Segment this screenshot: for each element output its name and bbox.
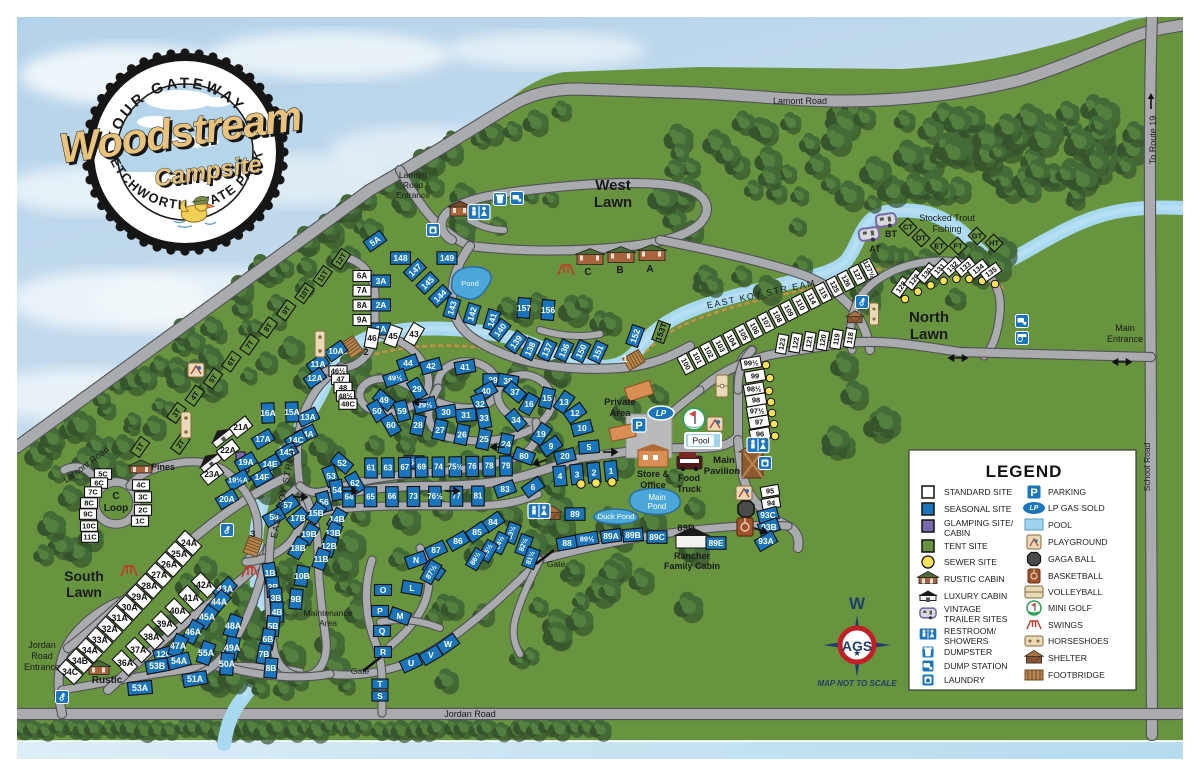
svg-text:46A: 46A	[185, 627, 202, 637]
svg-text:5C: 5C	[98, 470, 108, 479]
svg-text:POOL: POOL	[1048, 520, 1072, 530]
svg-text:GAGA BALL: GAGA BALL	[1048, 554, 1096, 564]
svg-text:FOOTBRIDGE: FOOTBRIDGE	[1048, 670, 1105, 680]
svg-text:Rustic: Rustic	[92, 675, 123, 686]
svg-text:W: W	[444, 639, 453, 649]
svg-text:59: 59	[397, 406, 407, 416]
svg-text:R: R	[380, 647, 386, 657]
svg-text:55A: 55A	[198, 648, 215, 658]
svg-text:SEASONAL SITE: SEASONAL SITE	[944, 504, 1012, 514]
svg-text:VOLLEYBALL: VOLLEYBALL	[1048, 587, 1103, 597]
svg-text:9: 9	[549, 441, 554, 451]
svg-text:Store &: Store &	[637, 469, 670, 479]
svg-text:15A: 15A	[284, 407, 300, 417]
svg-text:76: 76	[468, 462, 477, 471]
svg-text:W: W	[849, 594, 866, 613]
svg-text:16A: 16A	[260, 408, 276, 418]
svg-text:44: 44	[403, 358, 413, 368]
svg-text:89E: 89E	[708, 538, 723, 548]
svg-text:86: 86	[453, 536, 463, 546]
svg-text:6C: 6C	[94, 479, 104, 488]
svg-text:157: 157	[517, 303, 531, 313]
svg-text:94: 94	[767, 499, 776, 508]
svg-text:AT: AT	[869, 244, 881, 254]
svg-text:LP: LP	[1030, 505, 1039, 512]
svg-text:43: 43	[409, 329, 419, 339]
svg-text:Q: Q	[379, 626, 386, 636]
svg-text:3: 3	[575, 469, 580, 479]
svg-text:61: 61	[367, 464, 376, 473]
svg-text:West: West	[595, 177, 631, 194]
svg-text:N: N	[413, 555, 419, 565]
svg-text:37A: 37A	[130, 645, 147, 655]
svg-text:97½: 97½	[750, 407, 765, 416]
svg-text:Lawn: Lawn	[594, 194, 632, 211]
svg-text:ET: ET	[934, 242, 944, 251]
svg-text:156: 156	[541, 305, 555, 315]
svg-text:50A: 50A	[219, 659, 236, 669]
svg-text:HT: HT	[989, 239, 999, 248]
svg-text:89A: 89A	[603, 531, 619, 541]
svg-text:13A: 13A	[300, 412, 316, 422]
svg-text:39A: 39A	[156, 619, 173, 629]
svg-text:34B: 34B	[72, 656, 88, 666]
svg-text:78: 78	[485, 462, 494, 471]
svg-text:VINTAGE: VINTAGE	[944, 604, 981, 614]
svg-text:P: P	[377, 606, 383, 616]
svg-text:31: 31	[461, 410, 471, 420]
svg-text:42: 42	[426, 361, 436, 371]
svg-text:30: 30	[441, 407, 451, 417]
svg-text:Jordan Road: Jordan Road	[444, 709, 496, 719]
svg-text:50: 50	[372, 406, 382, 416]
svg-text:SWINGS: SWINGS	[1048, 620, 1083, 630]
svg-text:33: 33	[479, 413, 489, 423]
svg-text:45: 45	[388, 331, 398, 341]
svg-text:10B: 10B	[294, 571, 310, 581]
svg-text:C: C	[112, 491, 119, 502]
svg-text:Truck: Truck	[677, 484, 702, 494]
svg-text:P: P	[1030, 487, 1037, 499]
svg-text:38A: 38A	[143, 632, 160, 642]
svg-text:11C: 11C	[83, 533, 97, 542]
svg-text:LEGEND: LEGEND	[986, 462, 1063, 481]
svg-text:DUMP STATION: DUMP STATION	[944, 661, 1008, 671]
svg-text:18B: 18B	[290, 543, 306, 553]
svg-text:U: U	[408, 658, 414, 668]
svg-text:76½: 76½	[427, 492, 443, 501]
svg-text:LP: LP	[656, 409, 667, 418]
svg-text:97: 97	[755, 418, 763, 427]
svg-text:B: B	[616, 265, 623, 276]
svg-text:29: 29	[412, 384, 422, 394]
svg-text:LUXURY CABIN: LUXURY CABIN	[944, 591, 1007, 601]
svg-text:Pond: Pond	[461, 279, 479, 288]
svg-text:33A: 33A	[92, 635, 109, 645]
svg-text:28: 28	[413, 420, 423, 430]
svg-text:20: 20	[560, 451, 570, 461]
svg-text:67: 67	[400, 463, 409, 472]
svg-text:89: 89	[570, 509, 580, 519]
svg-text:75½: 75½	[448, 462, 464, 471]
svg-text:L: L	[409, 583, 414, 593]
svg-text:⚦: ⚦	[58, 692, 65, 703]
svg-text:52: 52	[337, 458, 347, 468]
svg-text:93A: 93A	[758, 536, 774, 546]
svg-text:Pool: Pool	[692, 436, 709, 446]
svg-text:66: 66	[388, 492, 397, 501]
svg-text:9B: 9B	[291, 594, 302, 604]
svg-text:81: 81	[474, 492, 483, 501]
svg-text:Pond: Pond	[648, 502, 667, 511]
svg-text:12A: 12A	[307, 373, 323, 383]
svg-text:73: 73	[409, 492, 418, 501]
svg-text:45A: 45A	[199, 612, 216, 622]
svg-text:54A: 54A	[171, 656, 188, 666]
svg-text:7A: 7A	[357, 286, 367, 295]
svg-text:Entrance: Entrance	[396, 190, 430, 200]
svg-text:40A: 40A	[170, 606, 187, 616]
svg-text:A: A	[646, 264, 653, 275]
svg-text:11A: 11A	[310, 359, 325, 369]
svg-text:6B: 6B	[263, 634, 274, 644]
svg-text:36A: 36A	[117, 658, 134, 668]
svg-text:32A: 32A	[102, 624, 119, 634]
svg-text:65: 65	[366, 492, 375, 501]
svg-text:89D: 89D	[677, 523, 695, 534]
svg-text:Lawn: Lawn	[66, 584, 102, 600]
svg-text:25: 25	[479, 434, 489, 444]
svg-text:3C: 3C	[138, 493, 148, 502]
svg-text:17B: 17B	[290, 513, 306, 523]
svg-text:Maintenance: Maintenance	[304, 608, 353, 618]
svg-text:12: 12	[570, 408, 580, 418]
svg-text:Road: Road	[403, 180, 424, 190]
svg-text:8B: 8B	[266, 663, 277, 673]
svg-text:Food: Food	[678, 473, 700, 483]
svg-text:74: 74	[434, 463, 443, 472]
svg-text:SHOWERS: SHOWERS	[944, 636, 989, 646]
svg-text:19: 19	[536, 429, 546, 439]
svg-text:Main: Main	[1115, 323, 1135, 333]
svg-text:Entrance: Entrance	[1107, 334, 1143, 344]
svg-text:80: 80	[519, 451, 529, 461]
svg-text:FT: FT	[953, 242, 963, 251]
svg-text:10C: 10C	[82, 522, 96, 531]
svg-text:63: 63	[384, 463, 393, 472]
svg-text:54: 54	[332, 485, 342, 495]
svg-text:Lamont: Lamont	[399, 170, 428, 180]
svg-text:SHELTER: SHELTER	[1048, 653, 1087, 663]
svg-text:Main: Main	[713, 455, 735, 466]
svg-text:O: O	[380, 585, 387, 595]
svg-text:Pines: Pines	[151, 462, 175, 472]
svg-text:2C: 2C	[138, 506, 148, 515]
svg-text:1: 1	[622, 354, 627, 364]
svg-text:99½: 99½	[744, 359, 759, 368]
svg-text:S: S	[377, 691, 383, 701]
svg-text:Duck Pond: Duck Pond	[598, 512, 635, 521]
svg-text:⚦: ⚦	[223, 525, 230, 536]
svg-text:34: 34	[511, 415, 521, 425]
svg-text:49: 49	[379, 395, 389, 405]
svg-text:TRAILER SITES: TRAILER SITES	[944, 614, 1008, 624]
svg-text:PARKING: PARKING	[1048, 487, 1086, 497]
svg-text:28A: 28A	[141, 581, 158, 591]
svg-text:60: 60	[386, 420, 396, 430]
svg-text:RESTROOM/: RESTROOM/	[944, 626, 997, 636]
svg-text:14F: 14F	[255, 472, 270, 482]
svg-text:Stocked Trout: Stocked Trout	[919, 213, 975, 223]
svg-text:26A: 26A	[161, 560, 178, 570]
svg-text:89C: 89C	[649, 532, 665, 542]
svg-text:CABIN: CABIN	[944, 528, 970, 538]
svg-text:5: 5	[587, 442, 592, 452]
svg-text:★: ★	[853, 648, 861, 658]
svg-text:2: 2	[592, 468, 597, 478]
svg-text:19½A: 19½A	[228, 476, 249, 485]
svg-text:Area: Area	[609, 408, 631, 419]
svg-text:Pavilion: Pavilion	[704, 466, 741, 477]
svg-text:15: 15	[542, 393, 552, 403]
svg-text:6: 6	[531, 482, 536, 492]
svg-text:51A: 51A	[187, 674, 204, 684]
svg-text:STANDARD SITE: STANDARD SITE	[944, 487, 1012, 497]
svg-text:CT: CT	[903, 223, 913, 232]
svg-text:48A: 48A	[225, 621, 242, 631]
svg-text:Jordan: Jordan	[28, 640, 56, 650]
svg-text:School Road: School Road	[1142, 442, 1152, 491]
svg-text:South: South	[64, 568, 104, 584]
svg-text:Gate: Gate	[547, 559, 566, 569]
svg-text:20A: 20A	[219, 494, 235, 504]
svg-text:P: P	[635, 420, 642, 432]
svg-text:25A: 25A	[171, 549, 188, 559]
svg-text:149: 149	[440, 253, 454, 263]
svg-text:31A: 31A	[112, 613, 129, 623]
svg-text:Family Cabin: Family Cabin	[664, 561, 720, 571]
svg-text:85: 85	[472, 527, 482, 537]
svg-text:Lamont Road: Lamont Road	[773, 96, 827, 106]
svg-text:69: 69	[417, 463, 426, 472]
svg-text:27A: 27A	[151, 570, 168, 580]
svg-text:48C: 48C	[341, 400, 355, 409]
svg-text:LAUNDRY: LAUNDRY	[944, 675, 985, 685]
svg-text:53B: 53B	[149, 661, 165, 671]
svg-text:79: 79	[502, 462, 511, 471]
svg-text:49½: 49½	[388, 374, 403, 383]
svg-text:88: 88	[562, 538, 572, 548]
svg-text:M: M	[396, 611, 403, 621]
svg-text:Office: Office	[640, 480, 666, 490]
svg-text:23A: 23A	[204, 469, 220, 479]
svg-text:8A: 8A	[357, 301, 367, 310]
svg-text:29A: 29A	[131, 592, 148, 602]
svg-text:19A: 19A	[238, 457, 254, 467]
svg-text:24A: 24A	[181, 538, 198, 548]
svg-text:14E: 14E	[262, 459, 277, 469]
svg-text:10A: 10A	[328, 346, 344, 356]
svg-text:84: 84	[488, 517, 498, 527]
svg-text:83: 83	[500, 484, 510, 494]
svg-text:89B: 89B	[625, 530, 641, 540]
svg-text:TENT SITE: TENT SITE	[944, 541, 988, 551]
svg-text:30A: 30A	[121, 603, 138, 613]
svg-text:PLAYGROUND: PLAYGROUND	[1048, 537, 1108, 547]
svg-text:16: 16	[524, 399, 534, 409]
svg-text:To Route 19: To Route 19	[1148, 116, 1158, 165]
svg-text:10: 10	[577, 423, 587, 433]
svg-text:4C: 4C	[136, 481, 146, 490]
svg-text:1: 1	[609, 466, 614, 476]
svg-text:Main: Main	[648, 493, 665, 502]
svg-text:Lawn: Lawn	[910, 326, 948, 343]
svg-text:87: 87	[431, 545, 441, 555]
svg-text:17A: 17A	[255, 434, 271, 444]
svg-text:⚦: ⚦	[858, 297, 865, 308]
svg-text:37: 37	[510, 387, 520, 397]
svg-text:LP GAS SOLD: LP GAS SOLD	[1048, 503, 1105, 513]
svg-text:27: 27	[435, 425, 445, 435]
svg-text:44A: 44A	[211, 597, 228, 607]
svg-text:HORSESHOES: HORSESHOES	[1048, 636, 1109, 646]
svg-text:Private: Private	[604, 397, 636, 408]
svg-text:4: 4	[558, 471, 563, 481]
svg-text:22A: 22A	[220, 445, 236, 455]
svg-text:Loop: Loop	[104, 503, 128, 514]
svg-text:99: 99	[751, 372, 759, 381]
svg-text:9C: 9C	[83, 510, 93, 519]
svg-text:Fishing: Fishing	[932, 224, 961, 234]
svg-text:C: C	[584, 267, 591, 278]
svg-text:9A: 9A	[357, 316, 367, 325]
svg-text:21A: 21A	[233, 422, 249, 432]
svg-text:46: 46	[367, 333, 377, 343]
svg-text:34C: 34C	[62, 667, 79, 677]
svg-text:Entrance: Entrance	[24, 662, 60, 672]
svg-text:6A: 6A	[357, 272, 367, 281]
svg-text:148: 148	[393, 253, 407, 263]
svg-text:North: North	[909, 309, 949, 326]
svg-text:GLAMPING SITE/: GLAMPING SITE/	[944, 518, 1014, 528]
svg-text:98: 98	[752, 396, 760, 405]
svg-text:89½: 89½	[580, 535, 595, 544]
svg-text:7C: 7C	[88, 488, 98, 497]
svg-text:2A: 2A	[376, 300, 387, 310]
svg-text:Rancher: Rancher	[674, 551, 711, 561]
svg-text:BASKETBALL: BASKETBALL	[1048, 571, 1103, 581]
svg-text:V: V	[428, 650, 434, 660]
svg-text:GT: GT	[972, 232, 983, 241]
svg-text:11B: 11B	[313, 554, 328, 564]
svg-text:3: 3	[250, 529, 255, 539]
svg-text:53: 53	[326, 471, 336, 481]
svg-text:41A: 41A	[183, 593, 200, 603]
svg-text:SEWER SITE: SEWER SITE	[944, 557, 997, 567]
svg-text:26: 26	[457, 430, 467, 440]
svg-text:T: T	[377, 679, 383, 689]
svg-text:49A: 49A	[224, 643, 241, 653]
svg-text:47A: 47A	[170, 641, 187, 651]
svg-text:Road: Road	[31, 651, 53, 661]
svg-text:42A: 42A	[196, 580, 213, 590]
svg-text:41: 41	[460, 362, 470, 372]
svg-text:8C: 8C	[84, 499, 94, 508]
svg-text:15B: 15B	[308, 508, 324, 518]
svg-text:DT: DT	[916, 234, 926, 243]
svg-text:Area: Area	[319, 618, 337, 628]
svg-text:98½: 98½	[747, 385, 762, 394]
svg-text:95: 95	[766, 487, 774, 496]
svg-text:MINI GOLF: MINI GOLF	[1048, 603, 1092, 613]
svg-text:RUSTIC CABIN: RUSTIC CABIN	[944, 574, 1005, 584]
svg-text:13: 13	[559, 397, 569, 407]
svg-text:1C: 1C	[135, 517, 145, 526]
svg-text:BT: BT	[885, 229, 897, 239]
svg-text:53A: 53A	[132, 683, 149, 693]
svg-text:MAP NOT TO SCALE: MAP NOT TO SCALE	[817, 679, 897, 688]
svg-text:DUMPSTER: DUMPSTER	[944, 647, 992, 657]
svg-text:2: 2	[363, 347, 368, 357]
svg-text:19B: 19B	[301, 529, 317, 539]
svg-text:3A: 3A	[376, 276, 387, 286]
svg-text:34A: 34A	[82, 646, 99, 656]
svg-text:Gate: Gate	[351, 666, 370, 676]
